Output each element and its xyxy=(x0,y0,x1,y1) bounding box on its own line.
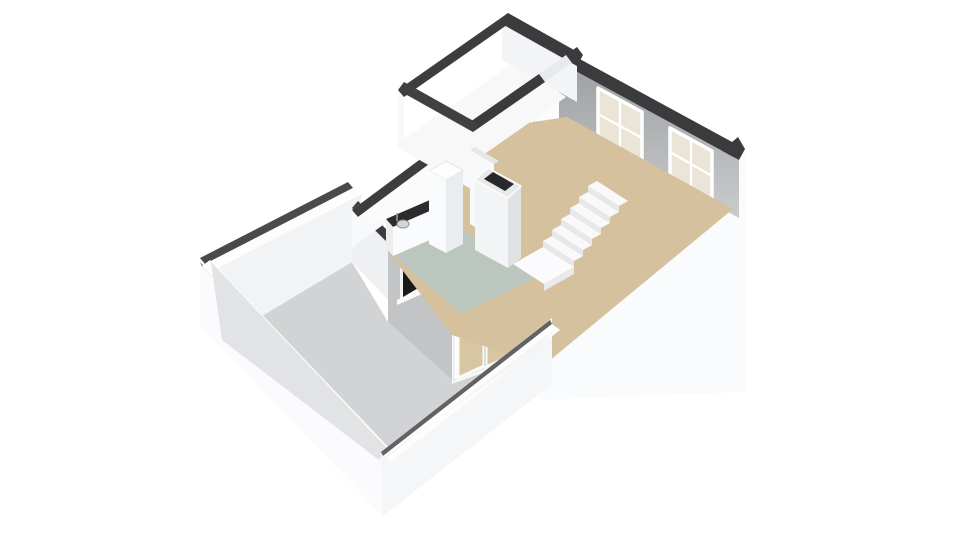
fridge-side xyxy=(446,170,463,253)
floorplan-3d-view xyxy=(0,0,960,540)
floorplan-shapes xyxy=(200,13,745,516)
floorplan-3d-canvas[interactable] xyxy=(0,0,960,540)
chimney-column-se-face xyxy=(508,186,521,268)
fridge-front xyxy=(429,171,446,253)
kitchen-sink xyxy=(397,220,409,228)
